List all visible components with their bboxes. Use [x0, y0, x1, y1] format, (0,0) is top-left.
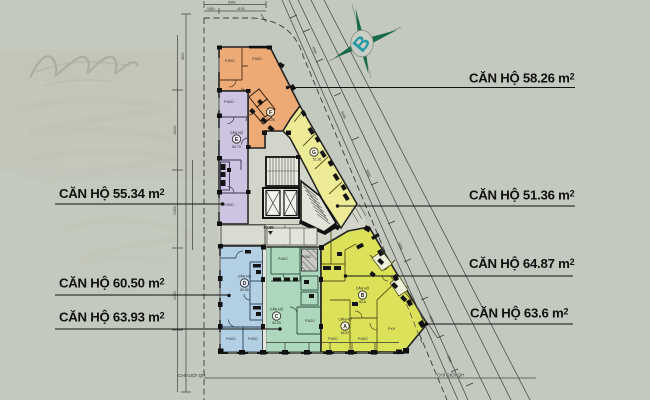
svg-text:A: A: [343, 324, 347, 330]
svg-text:CĂN HỘ 64.87 m2: CĂN HỘ 64.87 m2: [469, 256, 575, 271]
svg-text:P.NGỦ: P.NGỦ: [226, 336, 236, 341]
svg-text:C: C: [275, 314, 279, 320]
svg-text:64.87: 64.87: [341, 331, 350, 335]
svg-text:1500: 1500: [207, 7, 215, 11]
svg-text:10500: 10500: [173, 205, 177, 215]
svg-text:63.93: 63.93: [272, 321, 281, 325]
svg-text:CĂN HỘ: CĂN HỘ: [238, 274, 252, 279]
svg-text:4100: 4100: [237, 7, 245, 11]
svg-text:51.36: 51.36: [313, 158, 322, 162]
svg-text:D: D: [243, 281, 247, 287]
svg-text:B: B: [361, 293, 365, 299]
svg-text:P.RÁC: P.RÁC: [302, 255, 312, 259]
svg-text:12000: 12000: [173, 125, 177, 135]
svg-text:G: G: [312, 150, 316, 156]
svg-text:CĂN HỘ: CĂN HỘ: [270, 307, 284, 312]
svg-text:CĂN HỘ: CĂN HỘ: [356, 286, 370, 291]
svg-text:CHỈ GIỚI QH: CHỈ GIỚI QH: [437, 372, 464, 378]
svg-text:5400: 5400: [228, 1, 236, 5]
svg-text:+0.00: +0.00: [263, 225, 274, 230]
svg-text:54.73: 54.73: [232, 145, 241, 149]
svg-text:CĂN HỘ 58.26 m2: CĂN HỘ 58.26 m2: [469, 71, 575, 86]
svg-text:P.NGỦ: P.NGỦ: [278, 256, 288, 261]
svg-text:3600: 3600: [181, 52, 185, 60]
svg-text:CĂN HỘ 60.50 m2: CĂN HỘ 60.50 m2: [59, 276, 165, 291]
svg-text:P.NGỦ: P.NGỦ: [305, 318, 315, 323]
svg-text:63.6: 63.6: [359, 300, 366, 304]
svg-text:CĂN HỘ 63.93 m2: CĂN HỘ 63.93 m2: [59, 310, 165, 325]
svg-text:P.NGỦ: P.NGỦ: [224, 99, 234, 104]
svg-text:CHỈ GIỚI QH: CHỈ GIỚI QH: [178, 372, 205, 378]
svg-text:P.NGỦ: P.NGỦ: [225, 58, 235, 63]
svg-text:P.NGỦ: P.NGỦ: [328, 336, 338, 341]
svg-text:60.50: 60.50: [240, 288, 249, 292]
svg-text:P.NGỦ: P.NGỦ: [358, 336, 368, 341]
svg-text:CĂN HỘ 55.34 m2: CĂN HỘ 55.34 m2: [59, 186, 165, 201]
svg-text:F: F: [269, 110, 272, 116]
svg-text:P.NGỦ: P.NGỦ: [248, 336, 258, 341]
svg-text:CĂN HỘ: CĂN HỘ: [338, 317, 352, 322]
svg-text:P.NGỦ: P.NGỦ: [224, 202, 234, 207]
svg-text:P.NGỦ: P.NGỦ: [252, 56, 262, 61]
svg-text:CĂN HỘ: CĂN HỘ: [230, 130, 244, 135]
svg-text:P.KH: P.KH: [388, 327, 396, 331]
svg-text:CĂN HỘ 63.6 m2: CĂN HỘ 63.6 m2: [470, 306, 569, 321]
svg-text:CĂN HỘ 51.36 m2: CĂN HỘ 51.36 m2: [469, 188, 575, 203]
svg-text:58.26: 58.26: [266, 118, 275, 122]
